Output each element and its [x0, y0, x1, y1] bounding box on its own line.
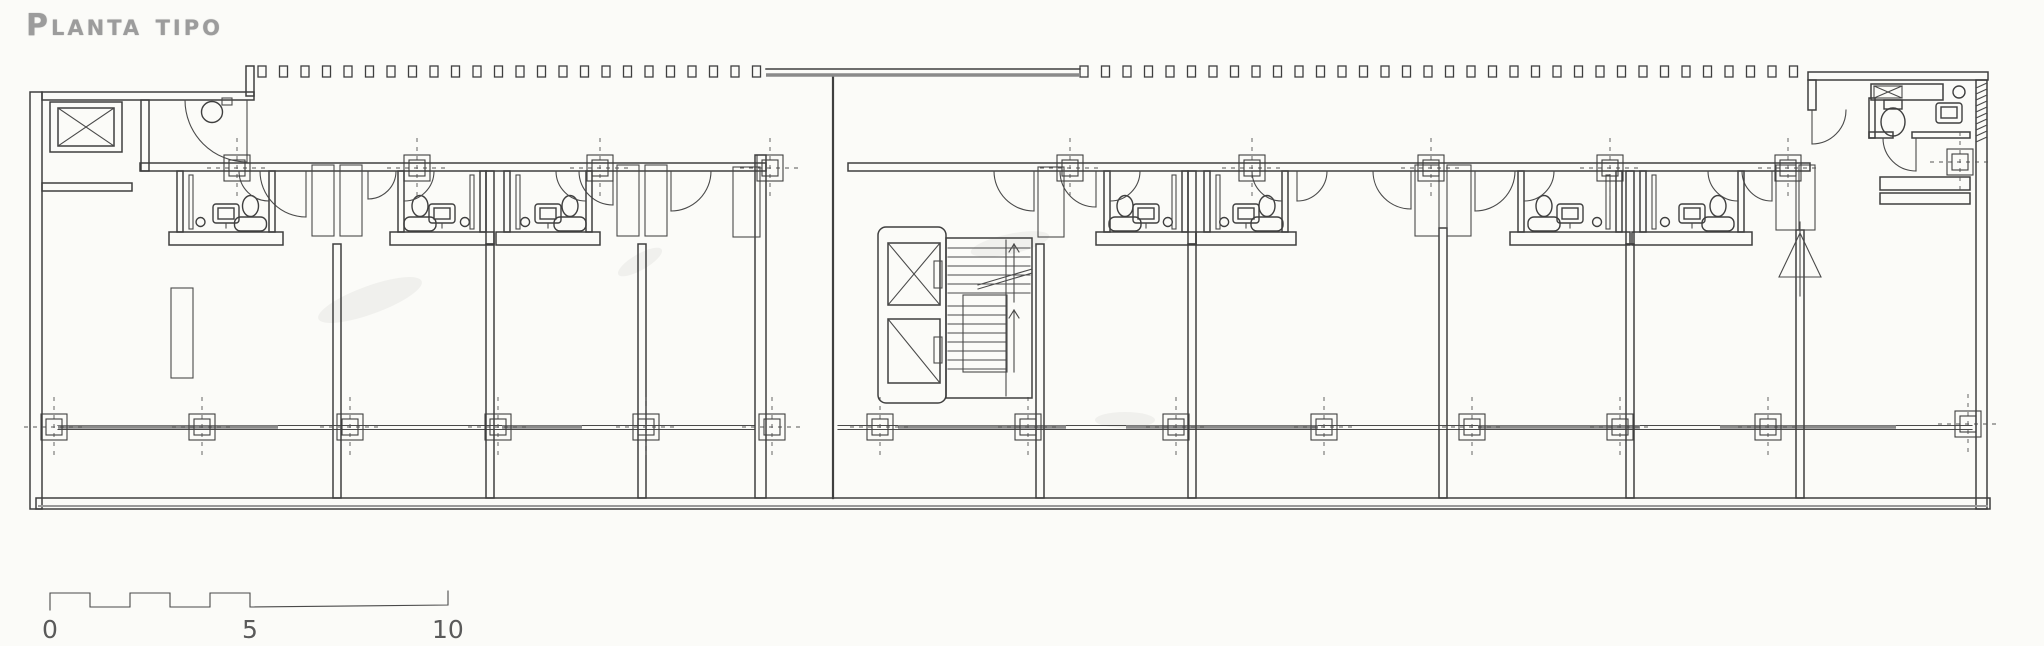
stair-up-arrow [1014, 310, 1019, 318]
mullion-square [1682, 66, 1690, 77]
mullion-square [430, 66, 438, 77]
toilet-icon [1536, 196, 1552, 217]
door-arc [994, 171, 1034, 211]
mullion-square [495, 66, 503, 77]
mullion-square [1446, 66, 1454, 77]
wall [486, 244, 494, 498]
wall-hatch [1976, 95, 1987, 100]
paper-smudge [614, 243, 665, 282]
floor-drain-icon [1660, 218, 1669, 227]
stair-up-arrow [1009, 310, 1014, 318]
wall [1188, 171, 1196, 244]
wall-hatch [1976, 125, 1987, 130]
mullion-square [516, 66, 524, 77]
mullion-square [1489, 66, 1497, 77]
mullion-square [667, 66, 675, 77]
wall-hatch [1976, 83, 1987, 88]
toilet-icon [554, 217, 586, 231]
wall [638, 244, 646, 498]
wall [141, 100, 149, 171]
floor-plan-page: Planta tipo 0510 [0, 0, 2044, 646]
door-arc [1373, 171, 1411, 209]
floor-drain-icon [196, 218, 205, 227]
toilet-icon [1109, 217, 1141, 231]
wall [1188, 244, 1196, 498]
wall [1808, 72, 1988, 80]
mullion-square [1553, 66, 1561, 77]
floor-drain-icon [1593, 218, 1602, 227]
mullion-square [1403, 66, 1411, 77]
wall [1626, 244, 1634, 498]
mullion-square [1295, 66, 1303, 77]
bathroom-pod-wall [1640, 171, 1646, 232]
paper-smudge [314, 268, 427, 332]
mullion-square [688, 66, 696, 77]
stair-break-line [978, 269, 1032, 285]
mullion-square [1510, 66, 1518, 77]
door-arc [1742, 171, 1772, 201]
bathroom-pod-wall [1182, 171, 1188, 232]
sink-icon [1233, 204, 1259, 223]
mullion-square [1467, 66, 1475, 77]
sink-icon [540, 208, 556, 219]
door-arc [1297, 171, 1327, 201]
wall [848, 163, 1810, 171]
sink-icon [1557, 204, 1583, 223]
bathroom-pod-shelf [1510, 232, 1630, 245]
door-arc [556, 171, 586, 201]
mullion-square [280, 66, 288, 77]
wall-hatch [1976, 113, 1987, 118]
bathroom-pod-shelf [169, 232, 283, 245]
duct-shaft [617, 165, 639, 236]
wall-hatch [1976, 101, 1987, 106]
duct-shaft [733, 167, 760, 237]
bathroom-pod-wall [1616, 171, 1622, 232]
door-arc [1524, 171, 1554, 201]
mullion-square [753, 66, 761, 77]
mullion-square [1274, 66, 1282, 77]
toilet-icon [1117, 196, 1133, 217]
mullion-square [1123, 66, 1131, 77]
toilet-icon [404, 217, 436, 231]
duct-shaft [1447, 165, 1471, 236]
bathroom-pod-wall [177, 171, 183, 232]
mullion-square [387, 66, 395, 77]
bathroom-pod-wall [504, 171, 510, 232]
mullion-square [1338, 66, 1346, 77]
duct-shaft [171, 288, 193, 378]
duct-shaft [645, 165, 667, 236]
floor-drain-icon [460, 218, 469, 227]
mullion-square [1231, 66, 1239, 77]
mullion-square [1618, 66, 1626, 77]
mullion-square [1596, 66, 1604, 77]
sink-icon [1936, 103, 1962, 123]
mullion-square [1790, 66, 1798, 77]
mullion-square [1102, 66, 1110, 77]
mullion-square [731, 66, 739, 77]
mullion-square [1661, 66, 1669, 77]
mullion-square [452, 66, 460, 77]
sink-icon [1138, 208, 1154, 219]
mullion-square [1639, 66, 1647, 77]
scale-bar-label: 0 [42, 615, 58, 644]
floor-drain-icon [1163, 218, 1172, 227]
mullion-square [538, 66, 546, 77]
vent-circle [1953, 86, 1965, 98]
mullion-square [624, 66, 632, 77]
scale-bar-label: 10 [432, 615, 464, 644]
toilet-icon [1710, 196, 1726, 217]
toilet-icon [1259, 196, 1275, 217]
wall [486, 171, 494, 244]
door-arc [185, 100, 247, 162]
wall [1880, 193, 1970, 204]
bathroom-pod-shelf [1632, 232, 1752, 245]
wall [1439, 228, 1447, 498]
wall [140, 163, 766, 171]
bathroom-pod-shelf [1196, 232, 1296, 245]
sink-icon [535, 204, 561, 223]
floor-drain-icon [521, 218, 530, 227]
wall-hatch [1976, 137, 1987, 142]
wall [1976, 80, 1987, 509]
mullion-square [1381, 66, 1389, 77]
scale-bar [50, 591, 448, 610]
door-arc [1475, 171, 1515, 211]
pod-partition-bar [189, 175, 193, 229]
wall [1808, 80, 1816, 110]
mullion-square [1080, 66, 1088, 77]
toilet-icon [1528, 217, 1560, 231]
floor-plan-svg: 0510 [0, 0, 2044, 646]
duct-shaft [312, 165, 334, 236]
sink-icon [1684, 208, 1700, 219]
mullion-square [258, 66, 266, 77]
mullion-square [409, 66, 417, 77]
door-arc [671, 171, 711, 211]
mullion-square [301, 66, 309, 77]
duct-shaft [222, 98, 232, 105]
mullion-square [581, 66, 589, 77]
wall [333, 244, 341, 498]
mullion-square [1145, 66, 1153, 77]
bathroom-pod-shelf [1096, 232, 1196, 245]
pod-partition-bar [1606, 175, 1610, 229]
duct-shaft [340, 165, 362, 236]
mullion-square [1575, 66, 1583, 77]
mullion-square [710, 66, 718, 77]
door-arc [1110, 171, 1140, 201]
sink-icon [1941, 107, 1957, 118]
wall [42, 183, 132, 191]
mullion-square [1317, 66, 1325, 77]
door-arc [1812, 110, 1846, 144]
mullion-square [602, 66, 610, 77]
door-arc [368, 171, 396, 199]
sink-icon [1238, 208, 1254, 219]
toilet-icon [1702, 217, 1734, 231]
floor-drain-icon [1220, 218, 1229, 227]
mullion-square [344, 66, 352, 77]
mullion-square [1252, 66, 1260, 77]
mullion-square [1166, 66, 1174, 77]
wall [36, 498, 1990, 509]
wall-hatch [1976, 107, 1987, 112]
bathroom-pod-wall [398, 171, 404, 232]
elevator-door [934, 337, 942, 363]
wall-hatch [1976, 119, 1987, 124]
mullion-square [323, 66, 331, 77]
mullion-square [366, 66, 374, 77]
door-arc [260, 171, 306, 217]
mullion-square [1768, 66, 1776, 77]
sink-icon [1679, 204, 1705, 223]
wall-hatch [1976, 89, 1987, 94]
wall [1912, 132, 1970, 138]
sink-icon [429, 204, 455, 223]
wall [30, 92, 42, 509]
pod-partition-bar [1652, 175, 1656, 229]
sink-icon [218, 208, 234, 219]
pod-partition-bar [516, 175, 520, 229]
scale-bar-label: 5 [242, 615, 258, 644]
sink-icon [1133, 204, 1159, 223]
bathroom-pod-wall [1518, 171, 1524, 232]
mullion-square [1424, 66, 1432, 77]
bathroom-pod-shelf [496, 232, 600, 245]
mullion-square [1532, 66, 1540, 77]
duct-shaft [1776, 165, 1796, 230]
pod-partition-bar [470, 175, 474, 229]
elevator-x [888, 319, 940, 383]
mullion-square [1209, 66, 1217, 77]
mullion-square [1747, 66, 1755, 77]
door-arc [1883, 138, 1916, 171]
bathroom-pod-wall [1204, 171, 1210, 232]
mullion-square [559, 66, 567, 77]
mullion-square [1725, 66, 1733, 77]
mullion-square [473, 66, 481, 77]
mullion-square [1188, 66, 1196, 77]
mullion-square [645, 66, 653, 77]
mullion-square [1360, 66, 1368, 77]
mullion-square [1704, 66, 1712, 77]
bathroom-pod-shelf [390, 232, 494, 245]
wall [1880, 177, 1970, 190]
sink-icon [434, 208, 450, 219]
wall-hatch [1976, 131, 1987, 136]
toilet-icon [1251, 217, 1283, 231]
elevator-door [934, 261, 942, 288]
sink-icon [1562, 208, 1578, 219]
round-column [202, 102, 223, 123]
door-arc [1708, 171, 1738, 201]
wall [1036, 244, 1044, 498]
bathroom-pod-wall [480, 171, 486, 232]
